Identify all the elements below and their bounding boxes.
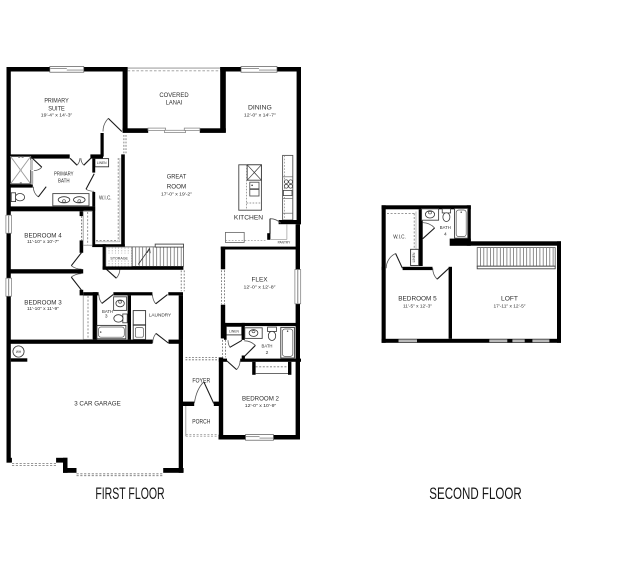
- svg-text:FLEX: FLEX: [252, 277, 269, 284]
- svg-text:11′-10″ x 11′-9″: 11′-10″ x 11′-9″: [27, 306, 59, 311]
- svg-text:LINEN: LINEN: [412, 252, 416, 262]
- svg-text:DINING: DINING: [248, 105, 272, 112]
- svg-text:LAUNDRY: LAUNDRY: [149, 313, 171, 318]
- svg-text:2: 2: [266, 350, 269, 356]
- svg-text:W.I.C.: W.I.C.: [393, 235, 406, 241]
- svg-text:COVERED: COVERED: [159, 92, 189, 99]
- svg-text:PANTRY: PANTRY: [278, 241, 292, 245]
- svg-text:STORAGE: STORAGE: [110, 257, 128, 261]
- svg-text:BEDROOM 5: BEDROOM 5: [398, 296, 437, 303]
- svg-text:11′-5″ x 12′-3″: 11′-5″ x 12′-3″: [403, 303, 432, 308]
- svg-text:BATH: BATH: [262, 344, 273, 350]
- svg-text:17′-0″ x 19′-2″: 17′-0″ x 19′-2″: [161, 191, 192, 196]
- svg-text:4: 4: [444, 232, 447, 238]
- svg-text:FIRST FLOOR: FIRST FLOOR: [95, 485, 164, 503]
- svg-text:BATH: BATH: [440, 225, 451, 231]
- svg-text:11′-10″ x 10′-7″: 11′-10″ x 10′-7″: [27, 239, 59, 244]
- svg-text:FOYER: FOYER: [192, 377, 210, 384]
- svg-text:WH: WH: [16, 350, 22, 354]
- svg-text:19′-4″ x 14′-3″: 19′-4″ x 14′-3″: [41, 112, 73, 117]
- svg-text:LOFT: LOFT: [501, 296, 518, 303]
- svg-text:SECOND FLOOR: SECOND FLOOR: [429, 485, 521, 503]
- svg-text:LINEN: LINEN: [229, 329, 239, 333]
- svg-text:LINEN: LINEN: [97, 161, 107, 165]
- svg-text:PRIMARY: PRIMARY: [44, 98, 69, 105]
- svg-text:GREAT: GREAT: [167, 174, 187, 181]
- svg-text:BATH: BATH: [102, 309, 113, 315]
- svg-text:KITCHEN: KITCHEN: [234, 215, 264, 222]
- svg-text:BEDROOM 2: BEDROOM 2: [242, 396, 279, 403]
- svg-text:PRIMARY: PRIMARY: [54, 171, 74, 177]
- svg-text:12′-0″ x 14′-7″: 12′-0″ x 14′-7″: [244, 112, 276, 117]
- svg-text:12′-0″ x 12′-8″: 12′-0″ x 12′-8″: [244, 285, 276, 290]
- svg-text:W.I.C.: W.I.C.: [99, 195, 112, 201]
- svg-text:LANAI: LANAI: [166, 100, 183, 107]
- svg-text:BATH: BATH: [58, 178, 70, 184]
- svg-text:12′-0″ x 10′-9″: 12′-0″ x 10′-9″: [245, 403, 277, 408]
- svg-text:PORCH: PORCH: [192, 418, 210, 425]
- svg-text:3 CAR GARAGE: 3 CAR GARAGE: [74, 401, 121, 408]
- svg-text:ROOM: ROOM: [167, 183, 187, 190]
- svg-text:17′-11″ x 12′-5″: 17′-11″ x 12′-5″: [494, 303, 526, 308]
- svg-text:3: 3: [105, 314, 108, 320]
